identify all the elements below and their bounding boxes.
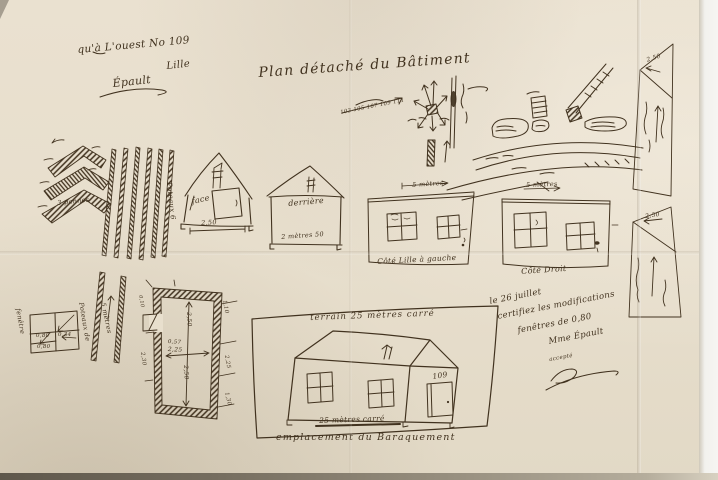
floorplan-dim-door: 0,10 <box>137 295 144 308</box>
side-elevation-right-sketch <box>502 182 618 268</box>
floorplan-dim-left: 2,30 <box>139 352 146 366</box>
side-elevation-left-sketch <box>368 181 474 265</box>
gable-panel-top-sketch <box>633 44 673 196</box>
door-number-label: 109 <box>432 371 448 381</box>
terrain-caption: emplacement du Baraquement <box>276 433 456 443</box>
floorplan-dim-height-lower: 2,50 <box>182 365 189 380</box>
scanned-plan-document: qu'à L'ouest No 109 Lille Épault Plan dé… <box>0 0 718 480</box>
scan-corner-mark <box>0 0 9 19</box>
scan-edge-bottom <box>0 473 718 480</box>
roof-chevrons-sketch <box>38 139 111 223</box>
window-dim-80b: 0,80 <box>37 345 50 351</box>
right-elevation-width-label: 5 mètres <box>526 181 558 189</box>
terrain-base-label: 25 mètres carré <box>319 415 385 425</box>
compass-arrows-sketch <box>408 76 467 166</box>
floorplan-dim-width: 2,25 <box>168 347 183 354</box>
floorplan-dim-right2: 2,25 <box>223 355 231 369</box>
plank-strips-top-sketch <box>102 147 174 260</box>
signature-flourish <box>546 369 618 390</box>
floorplan-dim-right1: 1,10 <box>221 300 229 314</box>
scan-edge-right <box>699 0 718 480</box>
window-dim-80a: 0,80 <box>36 334 49 340</box>
window-dim-34: 0,34 <box>58 333 71 339</box>
gable-panel-bottom-sketch <box>629 207 681 317</box>
floorplan-dim-height-upper: 2,50 <box>185 312 192 327</box>
face-width-dimension: 2,50 <box>201 219 217 226</box>
